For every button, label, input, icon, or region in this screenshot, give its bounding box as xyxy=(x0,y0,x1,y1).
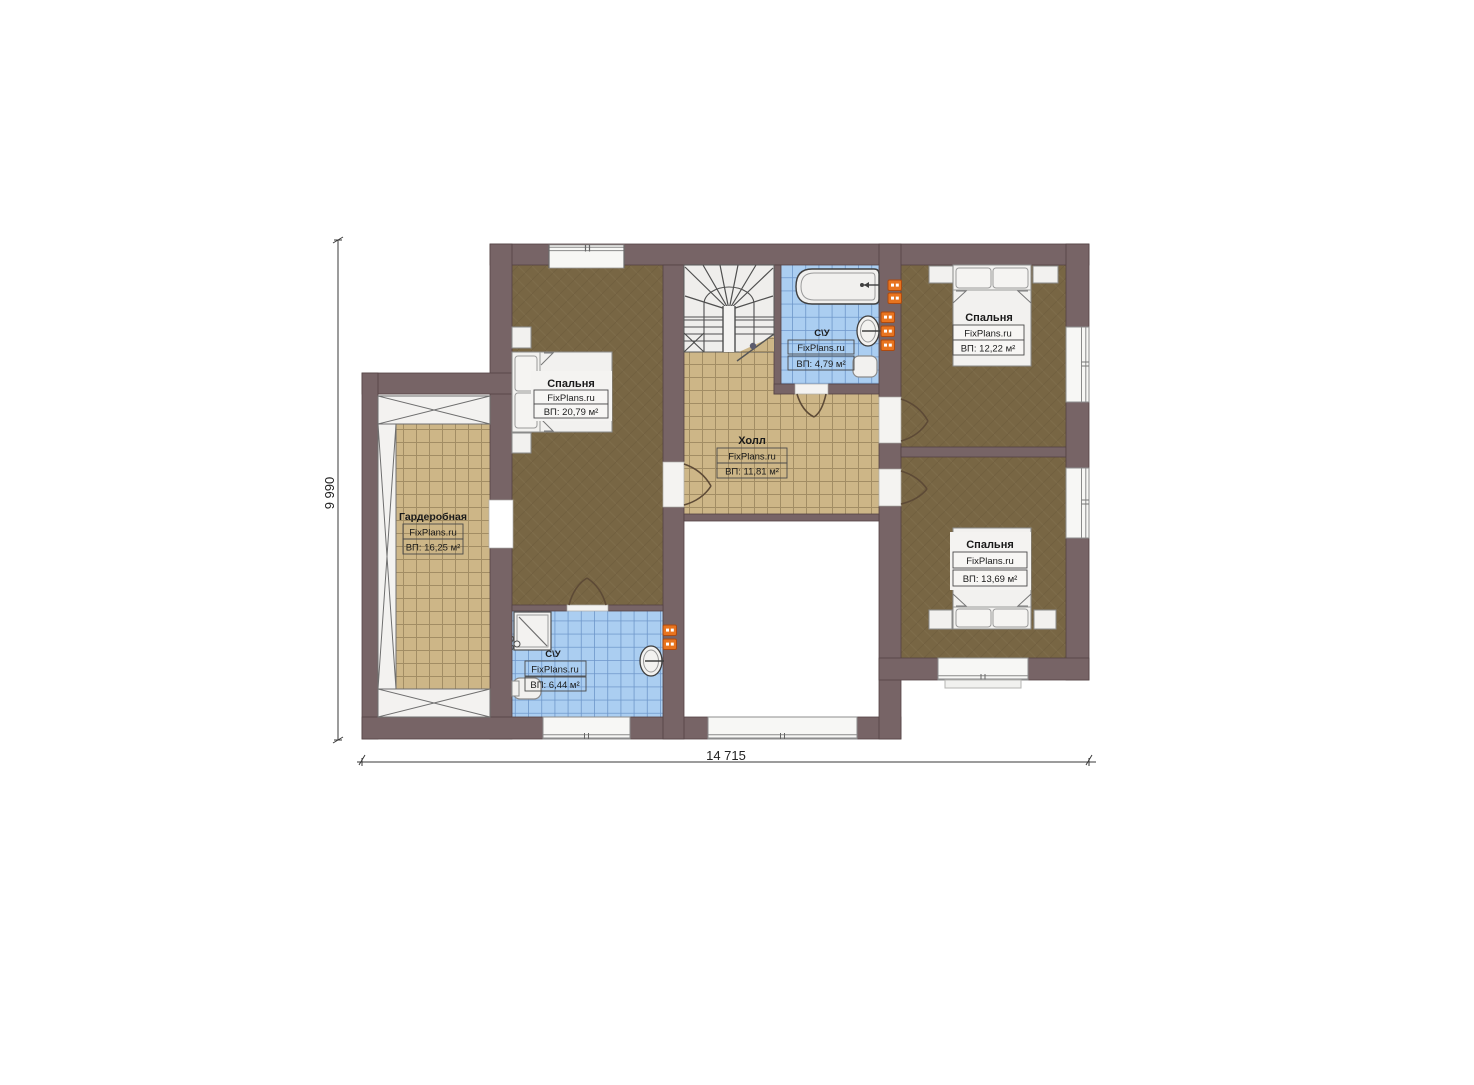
svg-text:Спальня: Спальня xyxy=(965,312,1013,324)
svg-text:FixPlans.ru: FixPlans.ru xyxy=(966,556,1014,567)
svg-text:С\У: С\У xyxy=(545,649,561,660)
svg-text:Спальня: Спальня xyxy=(547,378,595,390)
svg-text:ВП: 6,44 м²: ВП: 6,44 м² xyxy=(530,680,579,691)
svg-text:FixPlans.ru: FixPlans.ru xyxy=(409,528,457,539)
svg-text:С\У: С\У xyxy=(814,328,830,339)
svg-text:ВП: 12,22 м²: ВП: 12,22 м² xyxy=(961,344,1016,355)
svg-text:9 990: 9 990 xyxy=(322,477,337,510)
svg-text:Холл: Холл xyxy=(738,435,766,447)
svg-text:14 715: 14 715 xyxy=(706,748,746,763)
svg-text:Гардеробная: Гардеробная xyxy=(399,511,467,523)
svg-text:FixPlans.ru: FixPlans.ru xyxy=(547,393,595,404)
svg-text:ВП: 20,79 м²: ВП: 20,79 м² xyxy=(544,407,599,418)
svg-text:ВП: 4,79 м²: ВП: 4,79 м² xyxy=(796,359,845,370)
svg-text:ВП: 16,25 м²: ВП: 16,25 м² xyxy=(406,543,461,554)
svg-text:FixPlans.ru: FixPlans.ru xyxy=(728,452,776,463)
svg-text:ВП: 11,81 м²: ВП: 11,81 м² xyxy=(725,467,779,478)
svg-text:FixPlans.ru: FixPlans.ru xyxy=(964,329,1012,340)
svg-text:FixPlans.ru: FixPlans.ru xyxy=(797,343,845,354)
svg-text:Спальня: Спальня xyxy=(966,539,1014,551)
svg-text:FixPlans.ru: FixPlans.ru xyxy=(531,665,579,676)
svg-text:ВП: 13,69 м²: ВП: 13,69 м² xyxy=(963,574,1018,585)
